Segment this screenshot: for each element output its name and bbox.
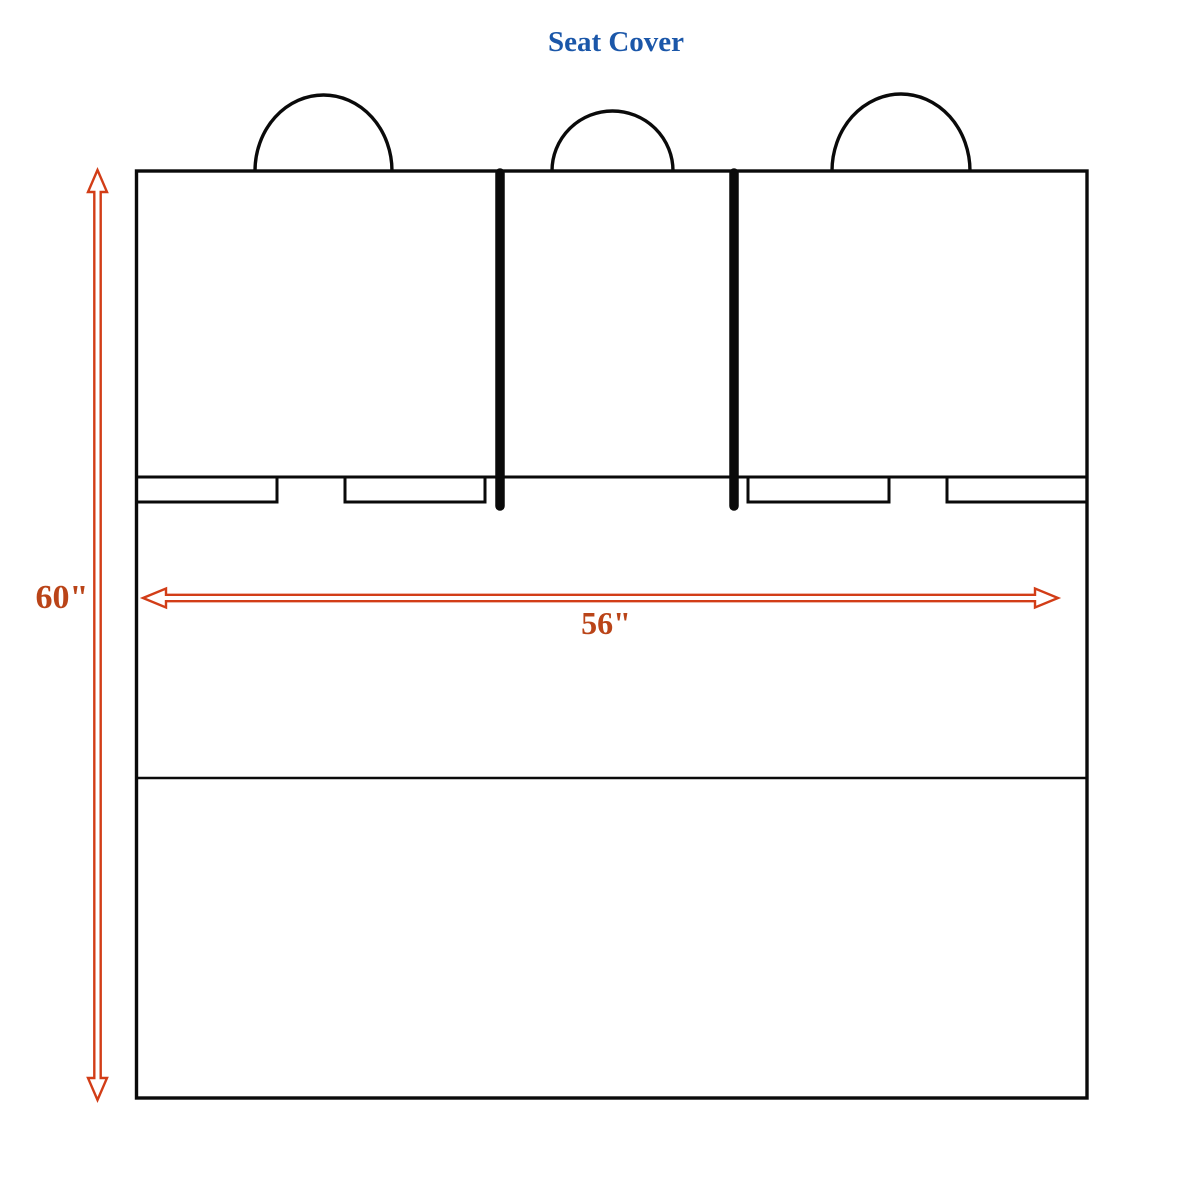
strap-flap-2 bbox=[345, 477, 485, 502]
headrest-hump-left bbox=[255, 95, 392, 171]
headrest-hump-middle bbox=[552, 111, 673, 171]
height-dimension-arrow bbox=[88, 170, 107, 1100]
seat-cover-page: Seat Cover 60" 56" bbox=[0, 0, 1200, 1200]
width-dimension-label: 56" bbox=[581, 605, 631, 642]
height-dimension-label: 60" bbox=[36, 579, 89, 617]
seat-cover-diagram bbox=[0, 0, 1200, 1200]
headrest-hump-right bbox=[832, 94, 970, 171]
strap-flap-3 bbox=[748, 477, 889, 502]
strap-flap-1 bbox=[137, 477, 278, 502]
strap-flap-4 bbox=[947, 477, 1087, 502]
